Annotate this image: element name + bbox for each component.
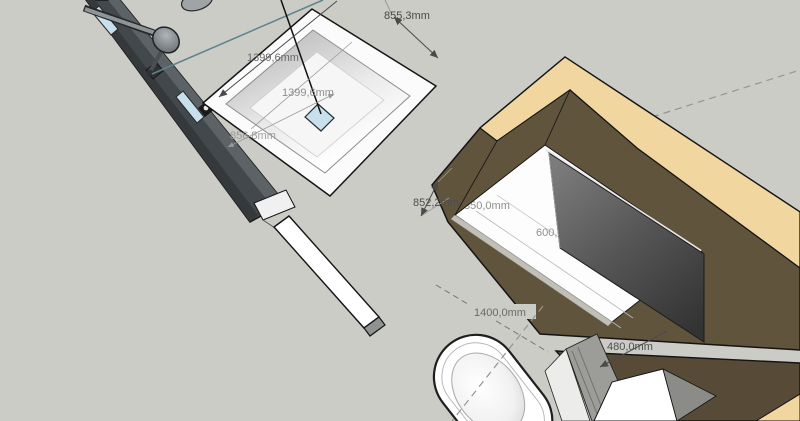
dim-label-tub-length-floor: 1399,6mm: [247, 52, 299, 64]
dim-label-tub-length-rim: 1399,6mm: [282, 87, 334, 99]
dim-label-vanity-length: 1400,0mm: [474, 307, 526, 319]
dim-label-tub-width: 855,3mm: [384, 10, 430, 22]
dim-label-tub-width-inner: 856,8mm: [230, 130, 276, 142]
cad-viewport[interactable]: 855,3mm 1399,6mm 1399,6mm 856,8mm 850,0m…: [0, 0, 800, 421]
dim-label-vanity-side: 480,0mm: [607, 341, 653, 353]
dim-label-vanity-depth: 852,2mm: [413, 197, 459, 209]
shower-arm-joint: [147, 70, 153, 76]
model-canvas[interactable]: 855,3mm 1399,6mm 1399,6mm 856,8mm 850,0m…: [0, 0, 800, 421]
